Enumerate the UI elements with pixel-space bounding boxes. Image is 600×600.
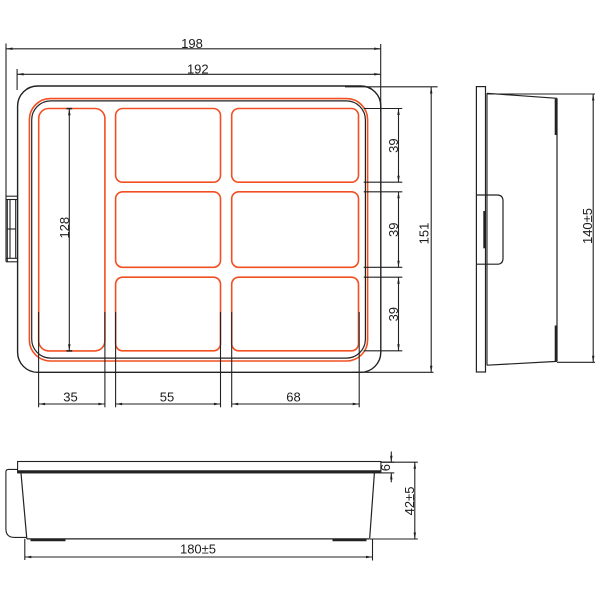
svg-text:39: 39	[386, 223, 401, 237]
svg-text:6: 6	[378, 464, 393, 471]
svg-text:55: 55	[160, 390, 174, 405]
svg-text:180±5: 180±5	[180, 542, 216, 557]
svg-text:198: 198	[181, 36, 203, 51]
svg-text:39: 39	[386, 138, 401, 152]
svg-text:128: 128	[57, 217, 72, 239]
svg-text:151: 151	[417, 223, 432, 245]
svg-text:42±5: 42±5	[402, 487, 417, 516]
svg-text:35: 35	[63, 390, 77, 405]
svg-text:192: 192	[187, 61, 209, 76]
svg-text:140±5: 140±5	[580, 208, 595, 244]
svg-text:68: 68	[286, 390, 300, 405]
svg-text:39: 39	[386, 307, 401, 321]
